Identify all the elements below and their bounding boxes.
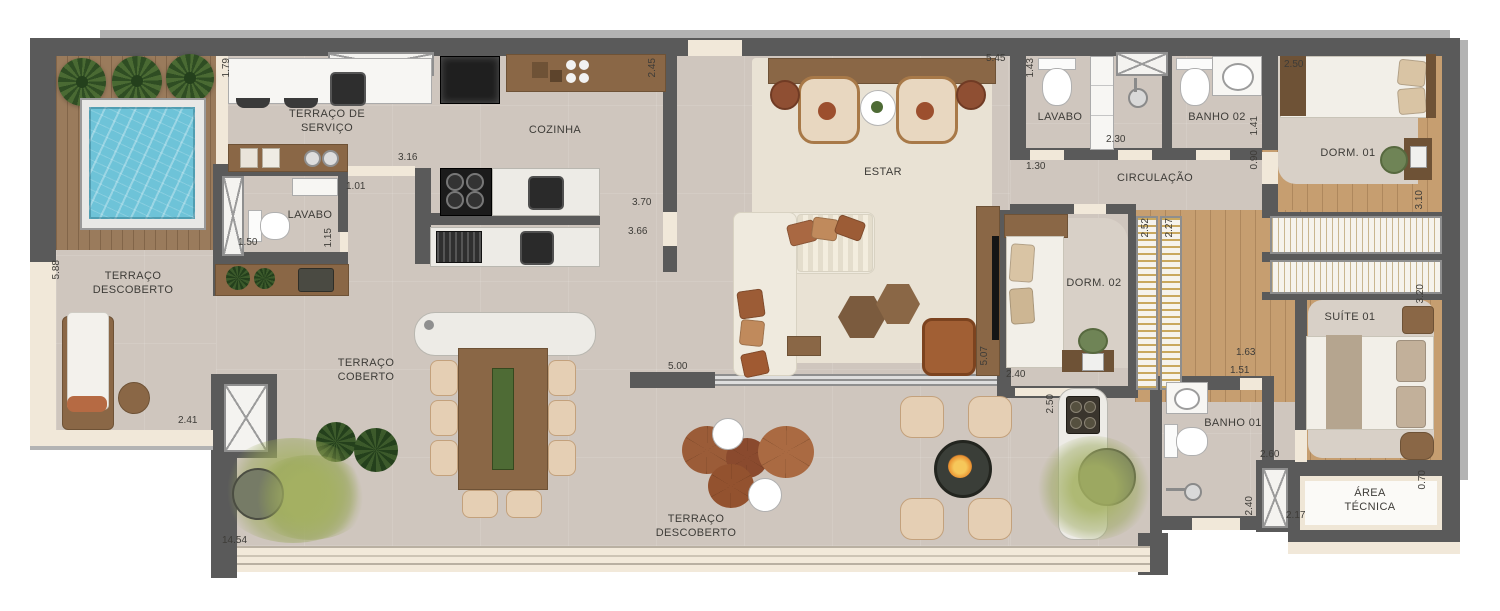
terrace-table xyxy=(748,478,782,512)
service-opening xyxy=(348,166,415,176)
dim-label: 2.40 xyxy=(1006,370,1025,380)
fire-chair xyxy=(900,396,944,438)
room-label-cozinha: COZINHA xyxy=(515,124,595,138)
room-label-dorm02: DORM. 02 xyxy=(1058,277,1130,291)
fire-chair xyxy=(968,498,1012,540)
toilet-icon xyxy=(1042,68,1072,106)
room-label-dorm01: DORM. 01 xyxy=(1312,147,1384,161)
pillow xyxy=(1009,287,1035,325)
shelf-plate xyxy=(566,73,576,83)
dim-label: 2.60 xyxy=(1260,450,1279,460)
wall-areatec-bottom xyxy=(1288,530,1442,542)
elevator-right xyxy=(1262,468,1288,528)
lavabo-dir-door xyxy=(1030,150,1064,160)
laundry-sink xyxy=(330,72,366,106)
dim-label: 5.88 xyxy=(52,260,62,279)
room-label-suite01: SUÍTE 01 xyxy=(1314,311,1386,325)
dim-label: 2.52 xyxy=(1141,218,1151,237)
banho01-door xyxy=(1240,378,1262,390)
dining-chair xyxy=(430,440,458,476)
side-table-round xyxy=(956,80,986,110)
desk-chair xyxy=(1078,328,1108,354)
fire-chair xyxy=(968,396,1012,438)
table-runner-plants xyxy=(492,368,514,470)
dim-label: 3.66 xyxy=(628,227,647,237)
dim-label: 2.50 xyxy=(1046,394,1056,413)
dim-label: 1.50 xyxy=(238,238,257,248)
floor-plan: TERRAÇO DESCOBERTO TERRAÇO DE SERVIÇO LA… xyxy=(0,0,1500,611)
tv-icon xyxy=(992,236,999,340)
dim-label: 3.10 xyxy=(1415,190,1425,209)
estar-top-opening xyxy=(688,40,742,56)
dim-label: 3.16 xyxy=(398,153,417,163)
dorm02-door xyxy=(1074,204,1106,214)
grill-burner xyxy=(1070,417,1082,429)
wall-circ-dorm02-b xyxy=(1106,204,1136,214)
bbq-tray xyxy=(298,268,334,292)
room-label-lavabo-dir: LAVABO xyxy=(1028,111,1092,125)
wall-circ-dorm02-a xyxy=(1010,204,1074,214)
dim-label: 2.30 xyxy=(1106,135,1125,145)
shelf-decor xyxy=(532,62,548,78)
cutting-board xyxy=(262,148,280,168)
pool xyxy=(89,107,195,219)
nightstand xyxy=(1402,306,1434,334)
dim-label: 1.63 xyxy=(1236,348,1255,358)
pouf xyxy=(758,426,814,478)
burner xyxy=(466,173,484,191)
dim-label: 1.79 xyxy=(222,58,232,77)
shelf-plate xyxy=(579,73,589,83)
room-label-terraco-descoberto-inf: TERRAÇO DESCOBERTO xyxy=(636,513,756,541)
shower-cabinet-xbox xyxy=(1116,52,1168,76)
room-label-area-tecnica: ÁREA TÉCNICA xyxy=(1332,487,1408,515)
room-label-banho02: BANHO 02 xyxy=(1180,111,1254,125)
laptop-icon xyxy=(1410,146,1427,168)
dim-label: 1.01 xyxy=(346,182,365,192)
fire-chair xyxy=(900,498,944,540)
lounge-towel xyxy=(67,396,107,412)
kitchen-sink xyxy=(528,176,564,210)
room-label-terraco-descoberto-esq: TERRAÇO DESCOBERTO xyxy=(75,270,191,298)
fire-icon xyxy=(948,454,972,478)
dim-label: 2.40 xyxy=(1245,496,1255,515)
banho02-door xyxy=(1196,150,1230,160)
wall-dorm02-closet xyxy=(1128,214,1136,390)
dining-chair xyxy=(506,490,542,518)
grill-burner xyxy=(1084,401,1096,413)
grill-burner xyxy=(1084,417,1096,429)
sofa-side-table xyxy=(787,336,821,356)
burner xyxy=(446,173,464,191)
terrace-table xyxy=(712,418,744,450)
kitchen-pass xyxy=(663,212,677,246)
wall-banho01-left xyxy=(1150,376,1162,533)
lavabo-esq-door xyxy=(340,232,348,252)
dorm01-wardrobe xyxy=(1270,216,1442,254)
terrace-railing xyxy=(237,546,1150,572)
dim-label: 0.90 xyxy=(1250,150,1260,169)
toilet-icon xyxy=(1176,427,1208,456)
dryer-icon xyxy=(284,98,318,108)
dining-chair xyxy=(430,360,458,396)
armchair-pillow xyxy=(916,102,934,120)
plant-icon xyxy=(226,266,250,290)
room-label-terraco-servico: TERRAÇO DE SERVIÇO xyxy=(267,108,387,136)
burner xyxy=(466,191,484,209)
dim-label: 0.70 xyxy=(1418,470,1428,489)
dining-chair xyxy=(430,400,458,436)
wall-dorm01-left-upper xyxy=(1262,38,1278,150)
toilet-icon xyxy=(1180,68,1210,106)
shelf-plate xyxy=(579,60,589,70)
dorm02-headboard-shelf xyxy=(1004,214,1068,238)
palm-tree-icon xyxy=(166,54,214,102)
plant-icon xyxy=(354,428,398,472)
wall-left xyxy=(30,38,56,262)
dim-label: 2.27 xyxy=(1165,218,1175,237)
console-sink xyxy=(304,150,321,167)
wall-dorm01-left-lower xyxy=(1262,184,1278,212)
cutting-board xyxy=(240,148,258,168)
basin-icon xyxy=(1222,63,1254,91)
nightstand xyxy=(1400,432,1434,460)
dim-label: 2.41 xyxy=(178,416,197,426)
pouf-chair xyxy=(922,318,976,376)
suite-door xyxy=(1295,430,1307,462)
wall-estar-lavabo xyxy=(1010,38,1026,156)
headboard xyxy=(1426,54,1436,118)
dim-label: 3.20 xyxy=(1416,284,1426,303)
room-label-estar: ESTAR xyxy=(855,166,911,180)
closet-column xyxy=(1136,216,1158,390)
shower-head-icon xyxy=(1128,88,1148,108)
dim-label: 5.45 xyxy=(986,54,1005,64)
shower-head-icon xyxy=(1184,483,1202,501)
room-label-banho01: BANHO 01 xyxy=(1196,417,1270,431)
dish-rack xyxy=(436,231,482,263)
basin-icon xyxy=(1174,388,1200,410)
dim-label: 5.07 xyxy=(980,346,990,365)
dim-label: 1.51 xyxy=(1230,366,1249,376)
dim-label: 3.70 xyxy=(632,198,651,208)
dim-label: 1.30 xyxy=(1026,162,1045,172)
cushion xyxy=(736,288,766,319)
side-table-round xyxy=(770,80,800,110)
wall-right-lower xyxy=(1442,476,1460,542)
table-plant-icon xyxy=(871,101,883,113)
room-label-terraco-coberto: TERRAÇO COBERTO xyxy=(316,357,416,385)
lavabo-esq-vanity xyxy=(292,178,338,196)
cushion xyxy=(739,319,766,347)
kitchen-sink-2 xyxy=(520,231,554,265)
wall-estar-terrace-left xyxy=(630,372,715,388)
dim-label: 2.45 xyxy=(648,58,658,77)
shower-bottom-door xyxy=(1192,518,1240,530)
tree-canopy xyxy=(1036,436,1152,540)
dining-chair xyxy=(548,440,576,476)
left-terrace-sill-line xyxy=(30,446,213,450)
dining-chair xyxy=(548,400,576,436)
room-label-lavabo-esq: LAVABO xyxy=(280,209,340,223)
shower-arm xyxy=(1134,78,1137,92)
pouf xyxy=(708,464,754,508)
dim-label: 2.17 xyxy=(1286,511,1305,521)
island-faucet xyxy=(424,320,434,330)
wall-right xyxy=(1442,38,1460,476)
dim-label: 5.00 xyxy=(668,362,687,372)
room-label-circulacao: CIRCULAÇÃO xyxy=(1108,172,1202,186)
pillow xyxy=(1396,340,1426,382)
areatec-outer-sill xyxy=(1288,542,1460,554)
dim-label: 1.15 xyxy=(324,228,334,247)
washer-icon xyxy=(236,98,270,108)
dim-label: 14.54 xyxy=(222,536,247,546)
side-table xyxy=(118,382,150,414)
burner xyxy=(446,191,464,209)
bed-throw xyxy=(1326,335,1362,429)
desk-chair xyxy=(1380,146,1408,174)
console-sink xyxy=(322,150,339,167)
pillow xyxy=(1397,59,1428,88)
grill-burner xyxy=(1070,401,1082,413)
shower-door xyxy=(1118,150,1152,160)
pillow xyxy=(1397,87,1427,115)
left-terrace-edge xyxy=(30,258,56,432)
closet-column xyxy=(1160,216,1182,390)
printer-icon xyxy=(1082,353,1104,371)
tree-canopy xyxy=(250,455,370,540)
plant-icon xyxy=(254,268,275,289)
left-terrace-sill xyxy=(30,430,213,446)
dining-chair xyxy=(548,360,576,396)
armchair-pillow xyxy=(818,102,836,120)
dining-chair xyxy=(462,490,498,518)
pillow xyxy=(1396,386,1426,428)
shelf-decor xyxy=(550,70,562,82)
pillow xyxy=(1009,243,1036,283)
dim-label: 1.41 xyxy=(1250,116,1260,135)
shelf-plate xyxy=(566,60,576,70)
dim-label: 1.43 xyxy=(1026,58,1036,77)
tv-panel xyxy=(440,56,500,104)
dorm01-door xyxy=(1262,152,1278,184)
dim-label: 2.50 xyxy=(1284,60,1303,70)
